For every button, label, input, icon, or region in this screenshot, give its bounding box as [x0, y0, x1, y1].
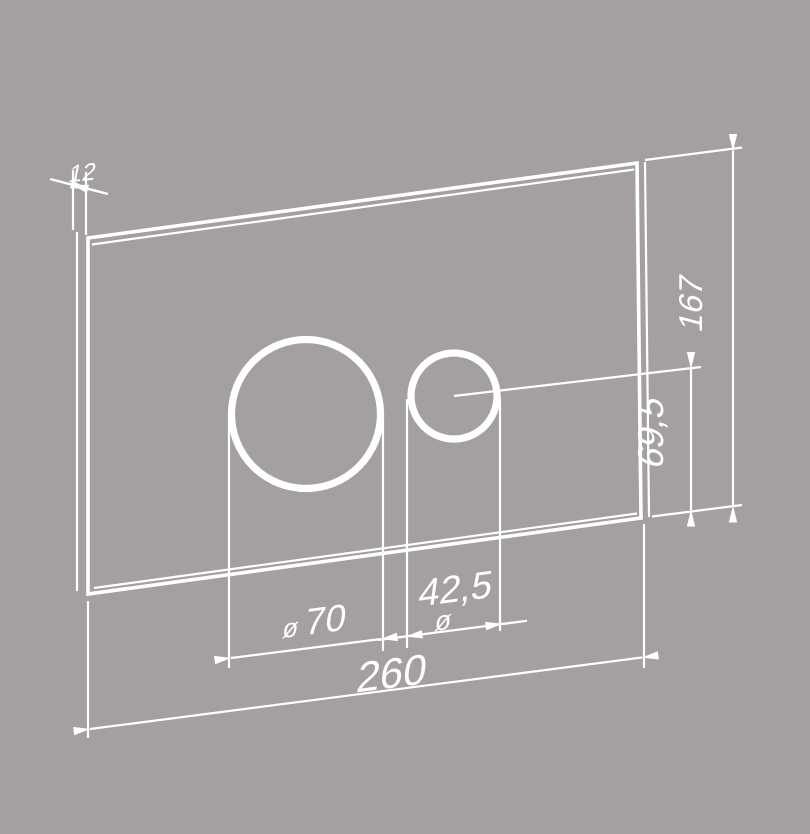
- dim-small-hole-arrow-right: [502, 621, 524, 624]
- dim-small-hole: 42,5 ø: [378, 563, 527, 640]
- dim-plate-height-label: 167: [674, 271, 710, 336]
- dim-plate-width: 260: [90, 645, 642, 729]
- technical-drawing-canvas: 12 167 69,5 ø 70 42,5 ø 260: [0, 0, 810, 834]
- dim-hole-center-offset-label: 69,5: [631, 391, 671, 472]
- dim-large-hole-value: 70: [303, 596, 349, 644]
- dim-large-hole-label: ø 70: [280, 596, 349, 647]
- dim-plate-height: 167: [674, 151, 733, 507]
- plate-bottom-inner-edge: [94, 514, 637, 589]
- plate-top-inner-edge: [92, 170, 634, 245]
- dim-thickness: 12: [50, 159, 108, 194]
- plate-outline: [77, 162, 649, 594]
- drawing-svg: 12 167 69,5 ø 70 42,5 ø 260: [0, 0, 810, 834]
- plate-front-face: [88, 163, 641, 594]
- dim-thickness-arrow-right: [87, 189, 103, 193]
- large-hole: [232, 340, 381, 489]
- dim-plate-width-label: 260: [354, 645, 430, 702]
- diameter-symbol: ø: [281, 612, 301, 644]
- diameter-symbol: ø: [433, 604, 454, 637]
- dim-large-hole: ø 70: [231, 596, 381, 658]
- ext-height-bottom: [652, 505, 742, 517]
- dim-thickness-label: 12: [67, 159, 99, 189]
- dim-small-hole-label: 42,5: [416, 563, 495, 616]
- ext-height-top: [645, 148, 742, 161]
- dim-small-hole-arrow-left: [389, 636, 406, 638]
